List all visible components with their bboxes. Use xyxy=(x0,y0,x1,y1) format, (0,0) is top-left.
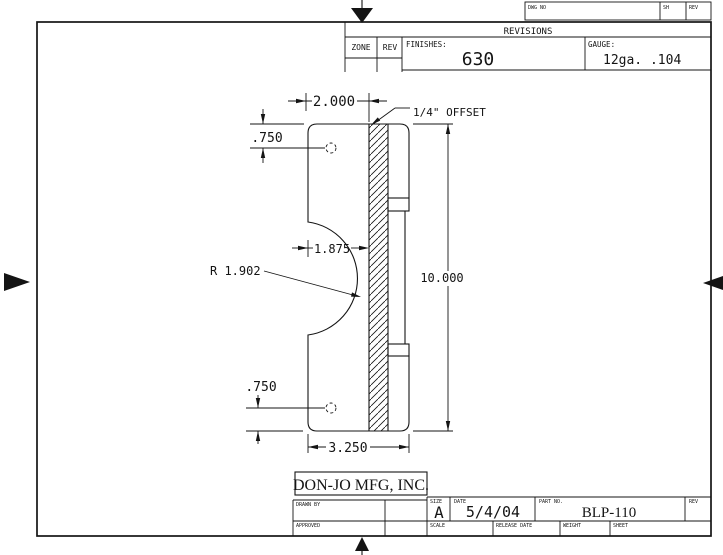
right-center-mark-arrow-icon xyxy=(703,276,723,290)
left-center-mark-arrow-icon xyxy=(4,273,30,291)
dim-2000: 2.000 xyxy=(288,93,387,122)
dim-hole-bottom-text: .750 xyxy=(245,380,276,395)
part-no-label: PART NO. xyxy=(539,499,563,505)
dim-width-bottom-text: 3.250 xyxy=(328,441,367,456)
gauge-label: GAUGE: xyxy=(588,40,615,49)
title-block: DON-JO MFG, INC. DRAWN BY APPROVED SIZE … xyxy=(293,472,711,536)
dim-750-top: .750 xyxy=(250,109,325,163)
dim-10000: 10.000 xyxy=(413,124,464,431)
sheet-label: SHEET xyxy=(613,523,628,529)
radius-leader: R 1.902 xyxy=(210,264,361,297)
offset-leader: 1/4" OFFSET xyxy=(371,106,486,125)
finishes-value: 630 xyxy=(462,49,495,70)
bottom-center-mark-arrow-icon xyxy=(355,537,369,551)
weight-label: WEIGHT xyxy=(563,523,581,529)
offset-note-text: 1/4" OFFSET xyxy=(413,106,486,119)
rev-label-block: REV xyxy=(689,499,698,505)
dim-750-bottom: .750 xyxy=(245,380,325,444)
top-strip-box xyxy=(525,2,711,20)
size-value: A xyxy=(434,503,444,522)
approved-label: APPROVED xyxy=(296,523,320,529)
bottom-mounting-hole xyxy=(326,403,336,413)
finishes-label: FINISHES: xyxy=(406,40,447,49)
company-name: DON-JO MFG, INC. xyxy=(293,477,429,494)
dim-height-text: 10.000 xyxy=(420,271,463,285)
offset-strip-hatch xyxy=(369,124,388,431)
dim-3250: 3.250 xyxy=(308,434,409,456)
top-center-mark-arrow-icon xyxy=(351,8,373,23)
part-outline xyxy=(308,124,409,431)
rev-label-top: REV xyxy=(689,5,698,11)
top-mounting-hole xyxy=(326,143,336,153)
part-view xyxy=(308,124,409,431)
sh-label: SH xyxy=(663,5,669,11)
part-no-value: BLP-110 xyxy=(582,505,636,521)
zone-label: ZONE xyxy=(351,43,370,52)
dwg-no-label: DWG NO xyxy=(528,5,546,11)
dim-width-top-text: 2.000 xyxy=(313,94,355,110)
drawing-sheet: DWG NO SH REV REVISIONS ZONE REV FINISHE… xyxy=(0,0,723,555)
cad-sheet-canvas: DWG NO SH REV REVISIONS ZONE REV FINISHE… xyxy=(0,0,723,555)
scale-label: SCALE xyxy=(430,523,445,529)
dim-1875: 1.875 xyxy=(292,240,369,257)
drawn-by-label: DRAWN BY xyxy=(296,502,320,508)
release-date-label: RELEASE DATE xyxy=(496,523,532,529)
top-strip: DWG NO SH REV xyxy=(525,2,711,20)
bottom-tab-hatch xyxy=(388,344,409,356)
date-value: 5/4/04 xyxy=(466,503,520,521)
dim-cutout-text: 1.875 xyxy=(314,242,350,256)
revisions-title: REVISIONS xyxy=(504,27,553,37)
top-tab-hatch xyxy=(388,198,409,211)
date-label: DATE xyxy=(454,499,466,505)
radius-note-text: R 1.902 xyxy=(210,264,261,278)
rev-label: REV xyxy=(383,43,398,52)
gauge-value: 12ga. .104 xyxy=(603,53,681,68)
dimensions: 2.000 1/4" OFFSET .750 1.875 xyxy=(210,93,486,456)
dim-hole-top-text: .750 xyxy=(251,131,282,146)
revisions-table: REVISIONS ZONE REV FINISHES: 630 GAUGE: … xyxy=(345,22,711,72)
